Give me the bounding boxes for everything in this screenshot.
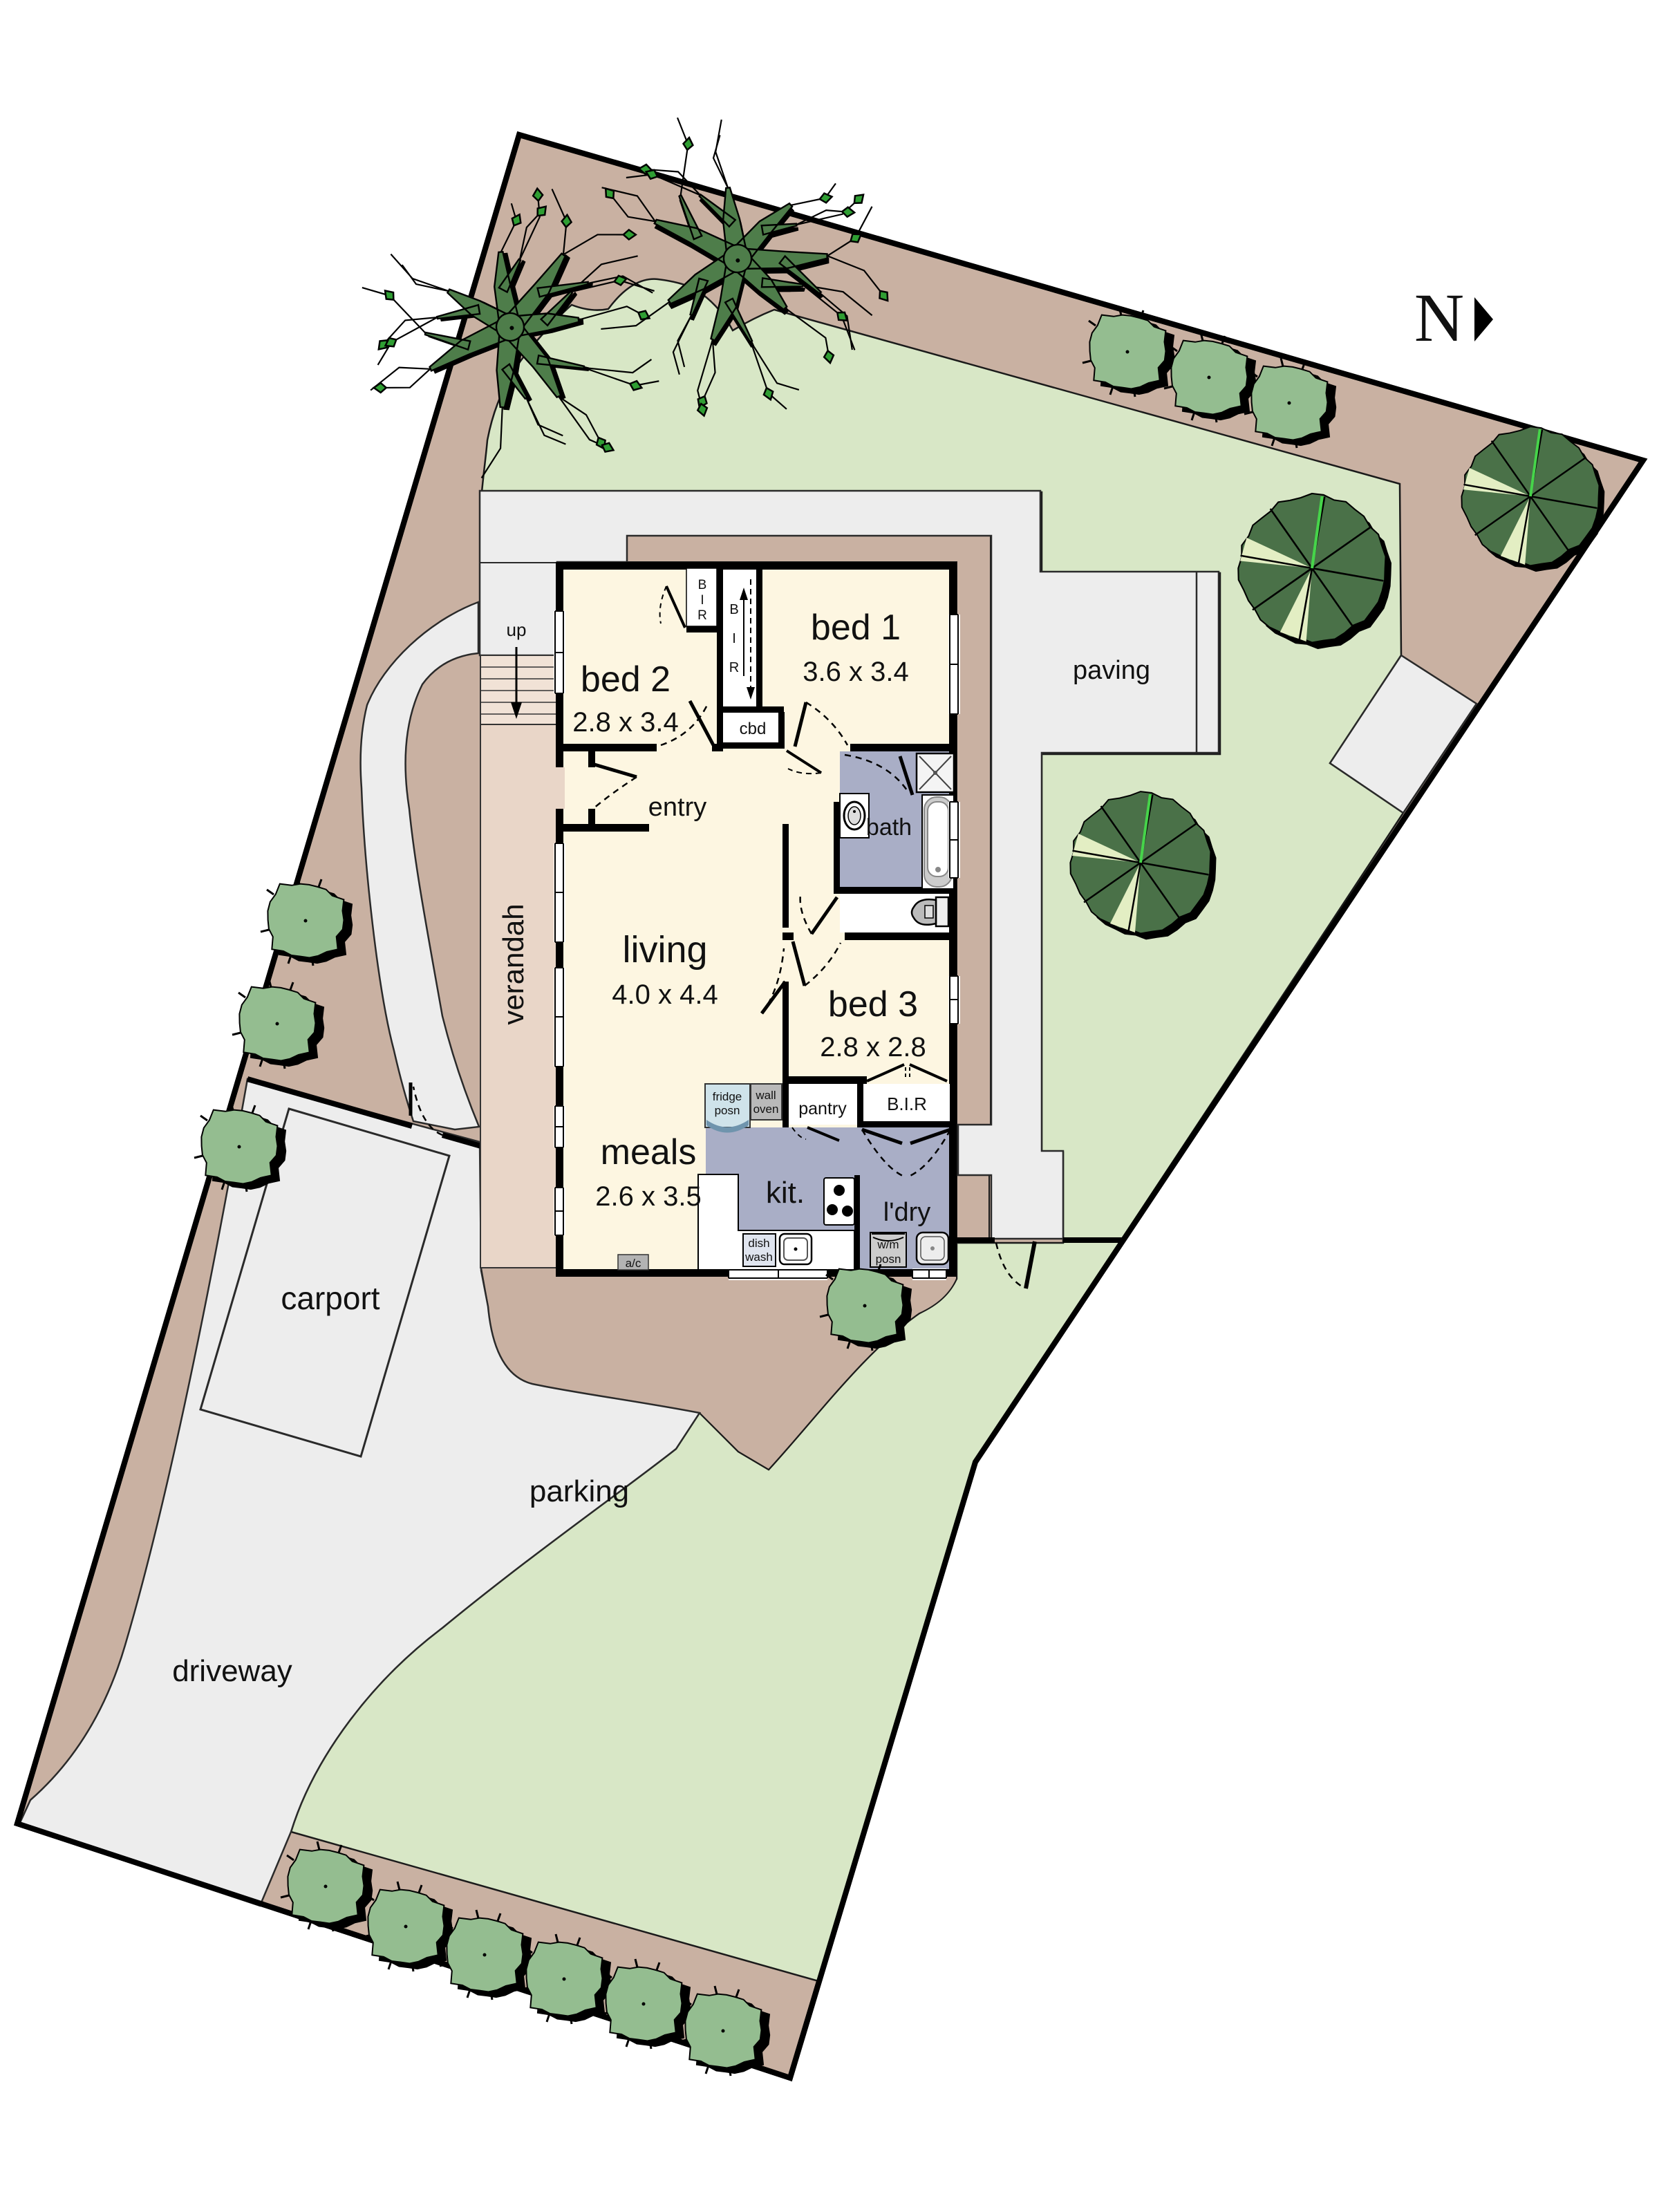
svg-text:living: living bbox=[622, 929, 707, 971]
svg-text:posn: posn bbox=[715, 1104, 740, 1117]
svg-text:2.8 x 2.8: 2.8 x 2.8 bbox=[820, 1032, 926, 1062]
svg-text:3.6 x 3.4: 3.6 x 3.4 bbox=[803, 657, 908, 687]
svg-text:w/m: w/m bbox=[877, 1238, 899, 1251]
svg-text:I: I bbox=[732, 631, 736, 646]
svg-text:pantry: pantry bbox=[798, 1099, 847, 1118]
svg-text:N: N bbox=[1414, 279, 1464, 356]
svg-text:l'dry: l'dry bbox=[883, 1198, 931, 1227]
svg-text:cbd: cbd bbox=[740, 720, 767, 738]
svg-text:a/c: a/c bbox=[626, 1257, 641, 1270]
svg-text:entry: entry bbox=[648, 793, 706, 822]
svg-text:bed 3: bed 3 bbox=[828, 984, 918, 1024]
svg-text:bed 1: bed 1 bbox=[811, 608, 901, 648]
svg-text:fridge: fridge bbox=[713, 1090, 742, 1103]
svg-text:verandah: verandah bbox=[497, 903, 529, 1024]
svg-text:wall: wall bbox=[755, 1089, 776, 1102]
svg-text:up: up bbox=[507, 619, 527, 640]
svg-text:bed 2: bed 2 bbox=[581, 659, 671, 700]
svg-text:2.6 x 3.5: 2.6 x 3.5 bbox=[595, 1181, 701, 1212]
svg-text:B: B bbox=[698, 578, 707, 592]
svg-text:posn: posn bbox=[876, 1253, 901, 1266]
svg-text:2.8 x 3.4: 2.8 x 3.4 bbox=[572, 707, 678, 738]
svg-text:I: I bbox=[700, 593, 704, 608]
svg-text:R: R bbox=[697, 608, 707, 623]
svg-text:R: R bbox=[729, 660, 739, 675]
svg-text:oven: oven bbox=[753, 1103, 779, 1116]
svg-text:carport: carport bbox=[281, 1280, 379, 1316]
svg-text:wash: wash bbox=[744, 1250, 773, 1264]
svg-text:B.I.R: B.I.R bbox=[887, 1094, 927, 1114]
svg-text:B: B bbox=[729, 602, 738, 617]
svg-text:4.0 x 4.4: 4.0 x 4.4 bbox=[612, 980, 718, 1010]
svg-text:bath: bath bbox=[866, 814, 912, 841]
svg-text:dish: dish bbox=[748, 1237, 769, 1250]
svg-text:meals: meals bbox=[601, 1132, 697, 1172]
svg-text:kit.: kit. bbox=[766, 1176, 805, 1210]
svg-text:driveway: driveway bbox=[172, 1654, 292, 1688]
svg-text:parking: parking bbox=[529, 1474, 629, 1508]
svg-text:paving: paving bbox=[1073, 656, 1150, 685]
